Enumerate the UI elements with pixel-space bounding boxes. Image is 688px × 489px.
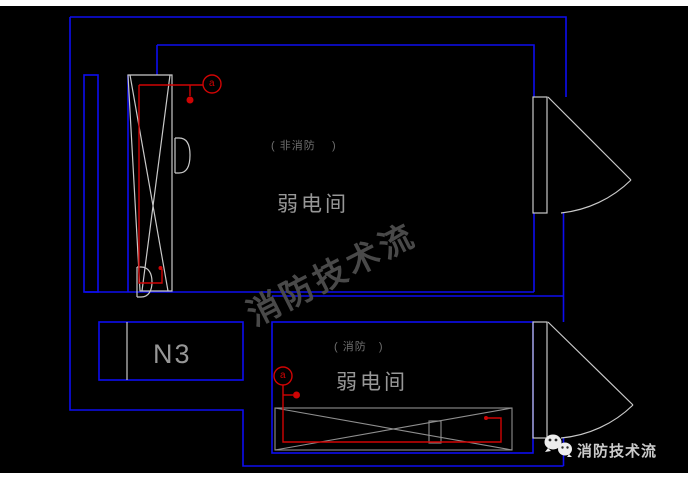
wechat-brand-text: 消防技术流 (577, 440, 657, 461)
circle-glyph-upper: a (209, 79, 215, 89)
lower-room-type-label: ( 消防 ) (334, 338, 384, 354)
red-circuit-upper (139, 75, 221, 283)
wechat-icon (545, 435, 573, 458)
equipment-d-symbol-top (175, 138, 190, 173)
lower-door (533, 322, 633, 438)
upper-door (533, 97, 631, 213)
duct-label: N3 (153, 339, 192, 370)
circle-glyph-lower: a (280, 371, 286, 381)
cad-screenshot: ( 非消防 ) 弱电间 ( 消防 ) 弱电间 N3 a a 消防技术流 消防技术… (0, 0, 688, 489)
upper-room-type-label: ( 非消防 ) (271, 137, 337, 153)
lower-cabinet (275, 408, 512, 450)
upper-room-name: 弱电间 (277, 188, 349, 218)
detector-dot-lower (293, 392, 300, 399)
upper-cabinet (128, 75, 190, 297)
lower-room-name: 弱电间 (336, 366, 408, 396)
detector-dot-upper (187, 97, 194, 104)
